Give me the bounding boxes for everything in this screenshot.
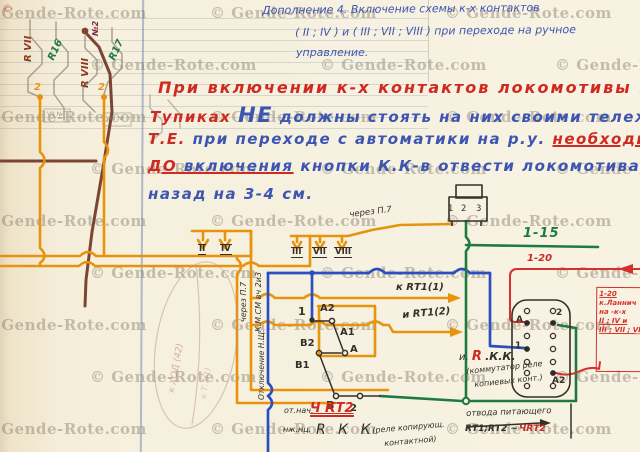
warning-l3-red: Т.Е.: [148, 130, 186, 148]
redbox-line-4: II ; IV и: [599, 317, 640, 326]
green-junction-ring: [463, 398, 469, 404]
warning-l4-vkl: включения: [177, 157, 293, 175]
label-nzh: нж.нц.: [283, 426, 311, 434]
scanned-schematic-page: © Gende-Rote.com© Gende-Rote.com© Gende-…: [0, 0, 640, 452]
label-button-terminal-3: 3: [476, 205, 481, 214]
label-r-vii: R VII: [24, 36, 34, 62]
label-pin-1: 1: [515, 342, 521, 351]
warning-l2-red: Тупиках: [150, 108, 231, 126]
label-roman-ii: II: [198, 244, 206, 255]
redbox-line-3: на -к-х: [599, 308, 640, 317]
warning-l2-big: НЕ: [238, 103, 273, 127]
label-rkk: R К К: [316, 423, 375, 437]
warning-line-1: При включении к-х контактов локомотивы в: [158, 80, 640, 96]
irkk-r: R: [472, 349, 482, 364]
label-contact-b2: В2: [300, 339, 315, 349]
warning-line-5: назад на 3-4 см.: [148, 187, 314, 202]
label-vii-n: VII №: [47, 112, 63, 118]
irkk-i: и.: [459, 352, 469, 363]
irkk-kk: .К.К.: [485, 350, 516, 363]
label-contact-a1: А1: [340, 328, 355, 338]
warning-line-3: Т.Е. при переходе с автоматики на р.у. н…: [148, 132, 640, 147]
redbox-line-1: 1-20: [599, 290, 640, 299]
label-r-viii: R VIII: [81, 58, 91, 88]
label-terminal-2-left: 2: [34, 83, 41, 93]
label-contact-a: А: [350, 345, 358, 355]
label-chkt2: Ч КТ2: [310, 402, 354, 417]
label-cherez-p7-vertical: через П.7: [240, 282, 248, 322]
label-terminal-2-right: 2: [98, 83, 105, 93]
warning-l3-red2: необходимо: [552, 130, 640, 148]
warning-l2-rest: должны стоять на них своими тележками.: [280, 108, 640, 126]
header-line-2: ( II ; IV ) и ( III ; VII ; VIII ) при п…: [295, 24, 576, 38]
label-chrt2: ЧRТ2: [519, 425, 546, 434]
label-roman-iii: III: [291, 247, 303, 258]
label-roman-vii: VII: [312, 247, 327, 258]
label-viii-n: VIII №: [106, 116, 124, 122]
label-kmsm: К.М.СМ вч 2и3: [255, 272, 263, 332]
label-contact-1: 1: [298, 306, 306, 317]
label-pin-a2: А2: [552, 377, 565, 386]
warning-l4-do: ДО: [148, 157, 177, 175]
redbox-line-2: к.Ланнич: [599, 299, 640, 308]
pencil-ellipse: [143, 256, 248, 434]
red-callout-box: 1-20 к.Ланнич на -к-х II ; IV и III ; VI…: [596, 287, 640, 372]
warning-l4-underlined: ДО включения: [148, 157, 294, 175]
label-button-terminal-2: 2: [461, 205, 466, 214]
label-rt12: RТ1;RТ2 ~: [465, 425, 518, 434]
contact-1-dot: [309, 317, 314, 322]
label-1-15: 1-15: [523, 227, 560, 240]
warning-l4-rest: кнопки К.К-в отвести локомотива: [300, 157, 640, 175]
label-i-rkk: и. R .К.К.: [459, 350, 516, 363]
warning-line-4: ДО включения кнопки К.К-в отвести локомо…: [148, 159, 640, 174]
brown-terminal-dot: [82, 28, 89, 35]
label-otkl: Отключение Н.Щ.: [258, 330, 266, 400]
label-k-rt1-1: к RТ1(1): [396, 283, 444, 293]
redbox-line-5: III ; VII ; VIII: [599, 326, 640, 335]
warning-l3-blue: при переходе с автоматики на р.у.: [193, 130, 546, 148]
orange-arrowhead-rt1-1: [448, 293, 461, 303]
label-1-20-wire: 1-20: [527, 254, 552, 264]
header-line-1: Дополнение 4. Включение схемы к-х контак…: [262, 2, 540, 16]
warning-line-2: Тупиках НЕ должны стоять на них своими т…: [150, 105, 640, 126]
label-button-terminal-1: 1: [448, 205, 453, 214]
label-no2: №2: [92, 21, 100, 36]
red-arrowhead: [618, 264, 633, 274]
label-contact-b1: В1: [295, 361, 310, 371]
label-pin-2: 2: [556, 309, 562, 318]
label-roman-iv: IV: [220, 244, 232, 255]
label-contact-a2: А2: [320, 304, 335, 314]
label-roman-viii: VIII: [334, 247, 352, 258]
header-line-3: управление.: [296, 47, 368, 58]
label-pin-a: А: [516, 316, 523, 325]
orange-arrowhead-rt1-2: [450, 327, 463, 337]
blue-junction-dot: [309, 270, 314, 275]
